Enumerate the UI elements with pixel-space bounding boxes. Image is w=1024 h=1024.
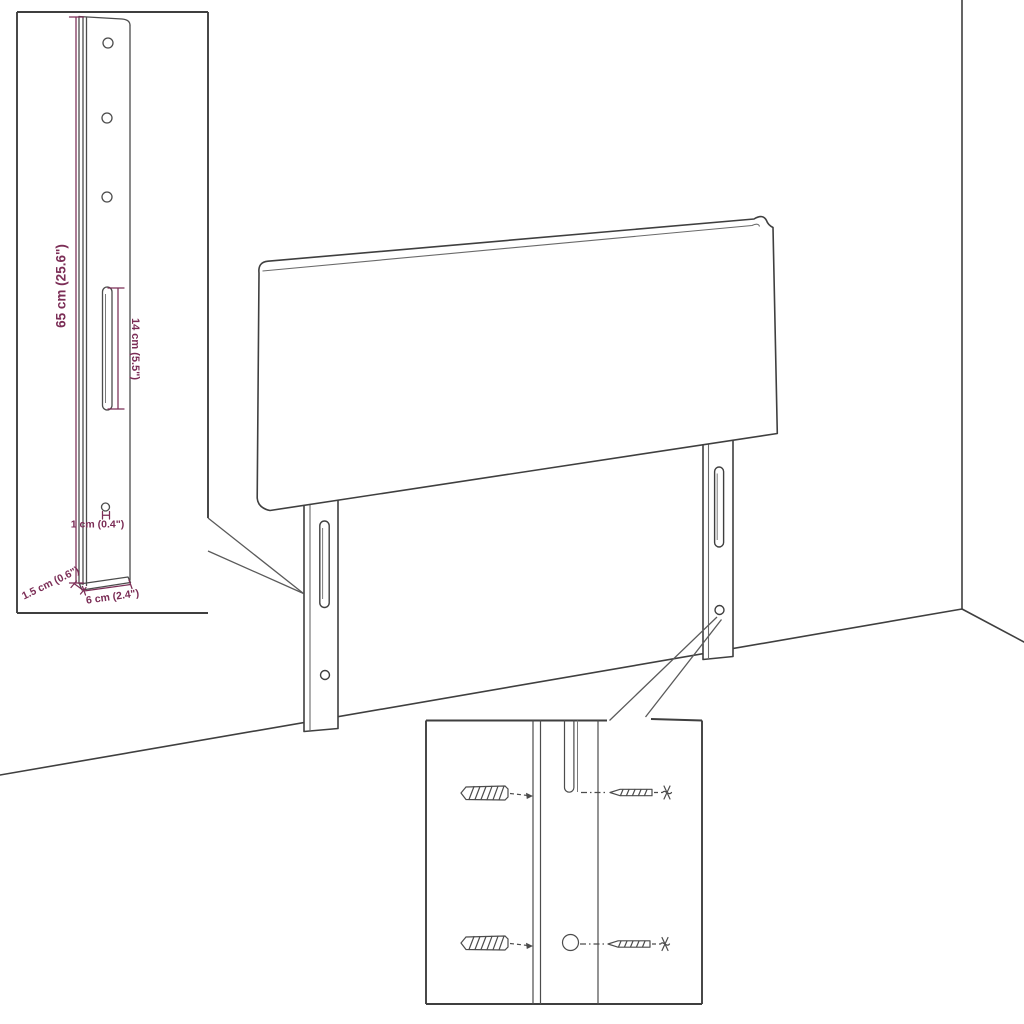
bracket-inset-callout-lines [208, 518, 304, 594]
hole-dim-label: 1 cm (0.4") [71, 519, 124, 531]
headboard-dimension-diagram: 65 cm (25.6") 14 cm (5.5") 1 cm (0.4") 1… [0, 0, 1024, 1024]
bracket-small-hole [102, 503, 110, 511]
screw-head [663, 786, 672, 799]
bracket-hole-2 [102, 113, 112, 123]
hardware-leg-strip [533, 721, 598, 1005]
screw-top [610, 786, 672, 799]
wall-plug-bottom [461, 936, 508, 950]
wall-plug-top-arrowhead [526, 793, 533, 799]
wall-plug-bottom-leader [510, 944, 528, 946]
wall-plug-threads [469, 936, 504, 950]
callout-line-upper [208, 518, 304, 594]
hardware-callout-line-right [646, 620, 722, 718]
headboard-panel [257, 217, 777, 511]
screw-head [661, 938, 670, 951]
hardware-border-top-right [651, 719, 702, 721]
slot-dim-label: 14 cm (5.5") [129, 318, 141, 380]
floor-line-right [962, 609, 1024, 642]
wall-plug-top [461, 786, 508, 800]
wall-plug-bottom-arrowhead [526, 943, 533, 949]
leg-strip-hole [563, 935, 579, 951]
wall-plug-top-leader [510, 794, 528, 796]
screw-threads [619, 941, 646, 947]
height-dim-label: 65 cm (25.6") [54, 244, 69, 328]
height-dim-line [70, 17, 84, 583]
bracket-dimensions: 65 cm (25.6") 14 cm (5.5") 1 cm (0.4") 1… [20, 17, 141, 607]
hardware-detail-inset [426, 617, 722, 1004]
bracket-hole-3 [102, 192, 112, 202]
leg-strip-slot [565, 721, 574, 793]
left-leg-body [304, 500, 338, 731]
bracket-drawing [79, 17, 131, 591]
bracket-slot [103, 287, 113, 410]
panel-outline [257, 217, 777, 511]
screw-bottom [608, 938, 670, 951]
slot-dim-line [108, 288, 124, 409]
bracket-hole-1 [103, 38, 113, 48]
hardware-callout-line-left [610, 617, 718, 721]
screw-threads [621, 790, 648, 796]
wall-plug-threads [469, 786, 504, 800]
callout-line-lower [208, 551, 304, 594]
left-mounting-leg [304, 500, 338, 731]
diagram-page: 65 cm (25.6") 14 cm (5.5") 1 cm (0.4") 1… [0, 0, 1024, 1024]
floor-line-left [0, 609, 962, 775]
